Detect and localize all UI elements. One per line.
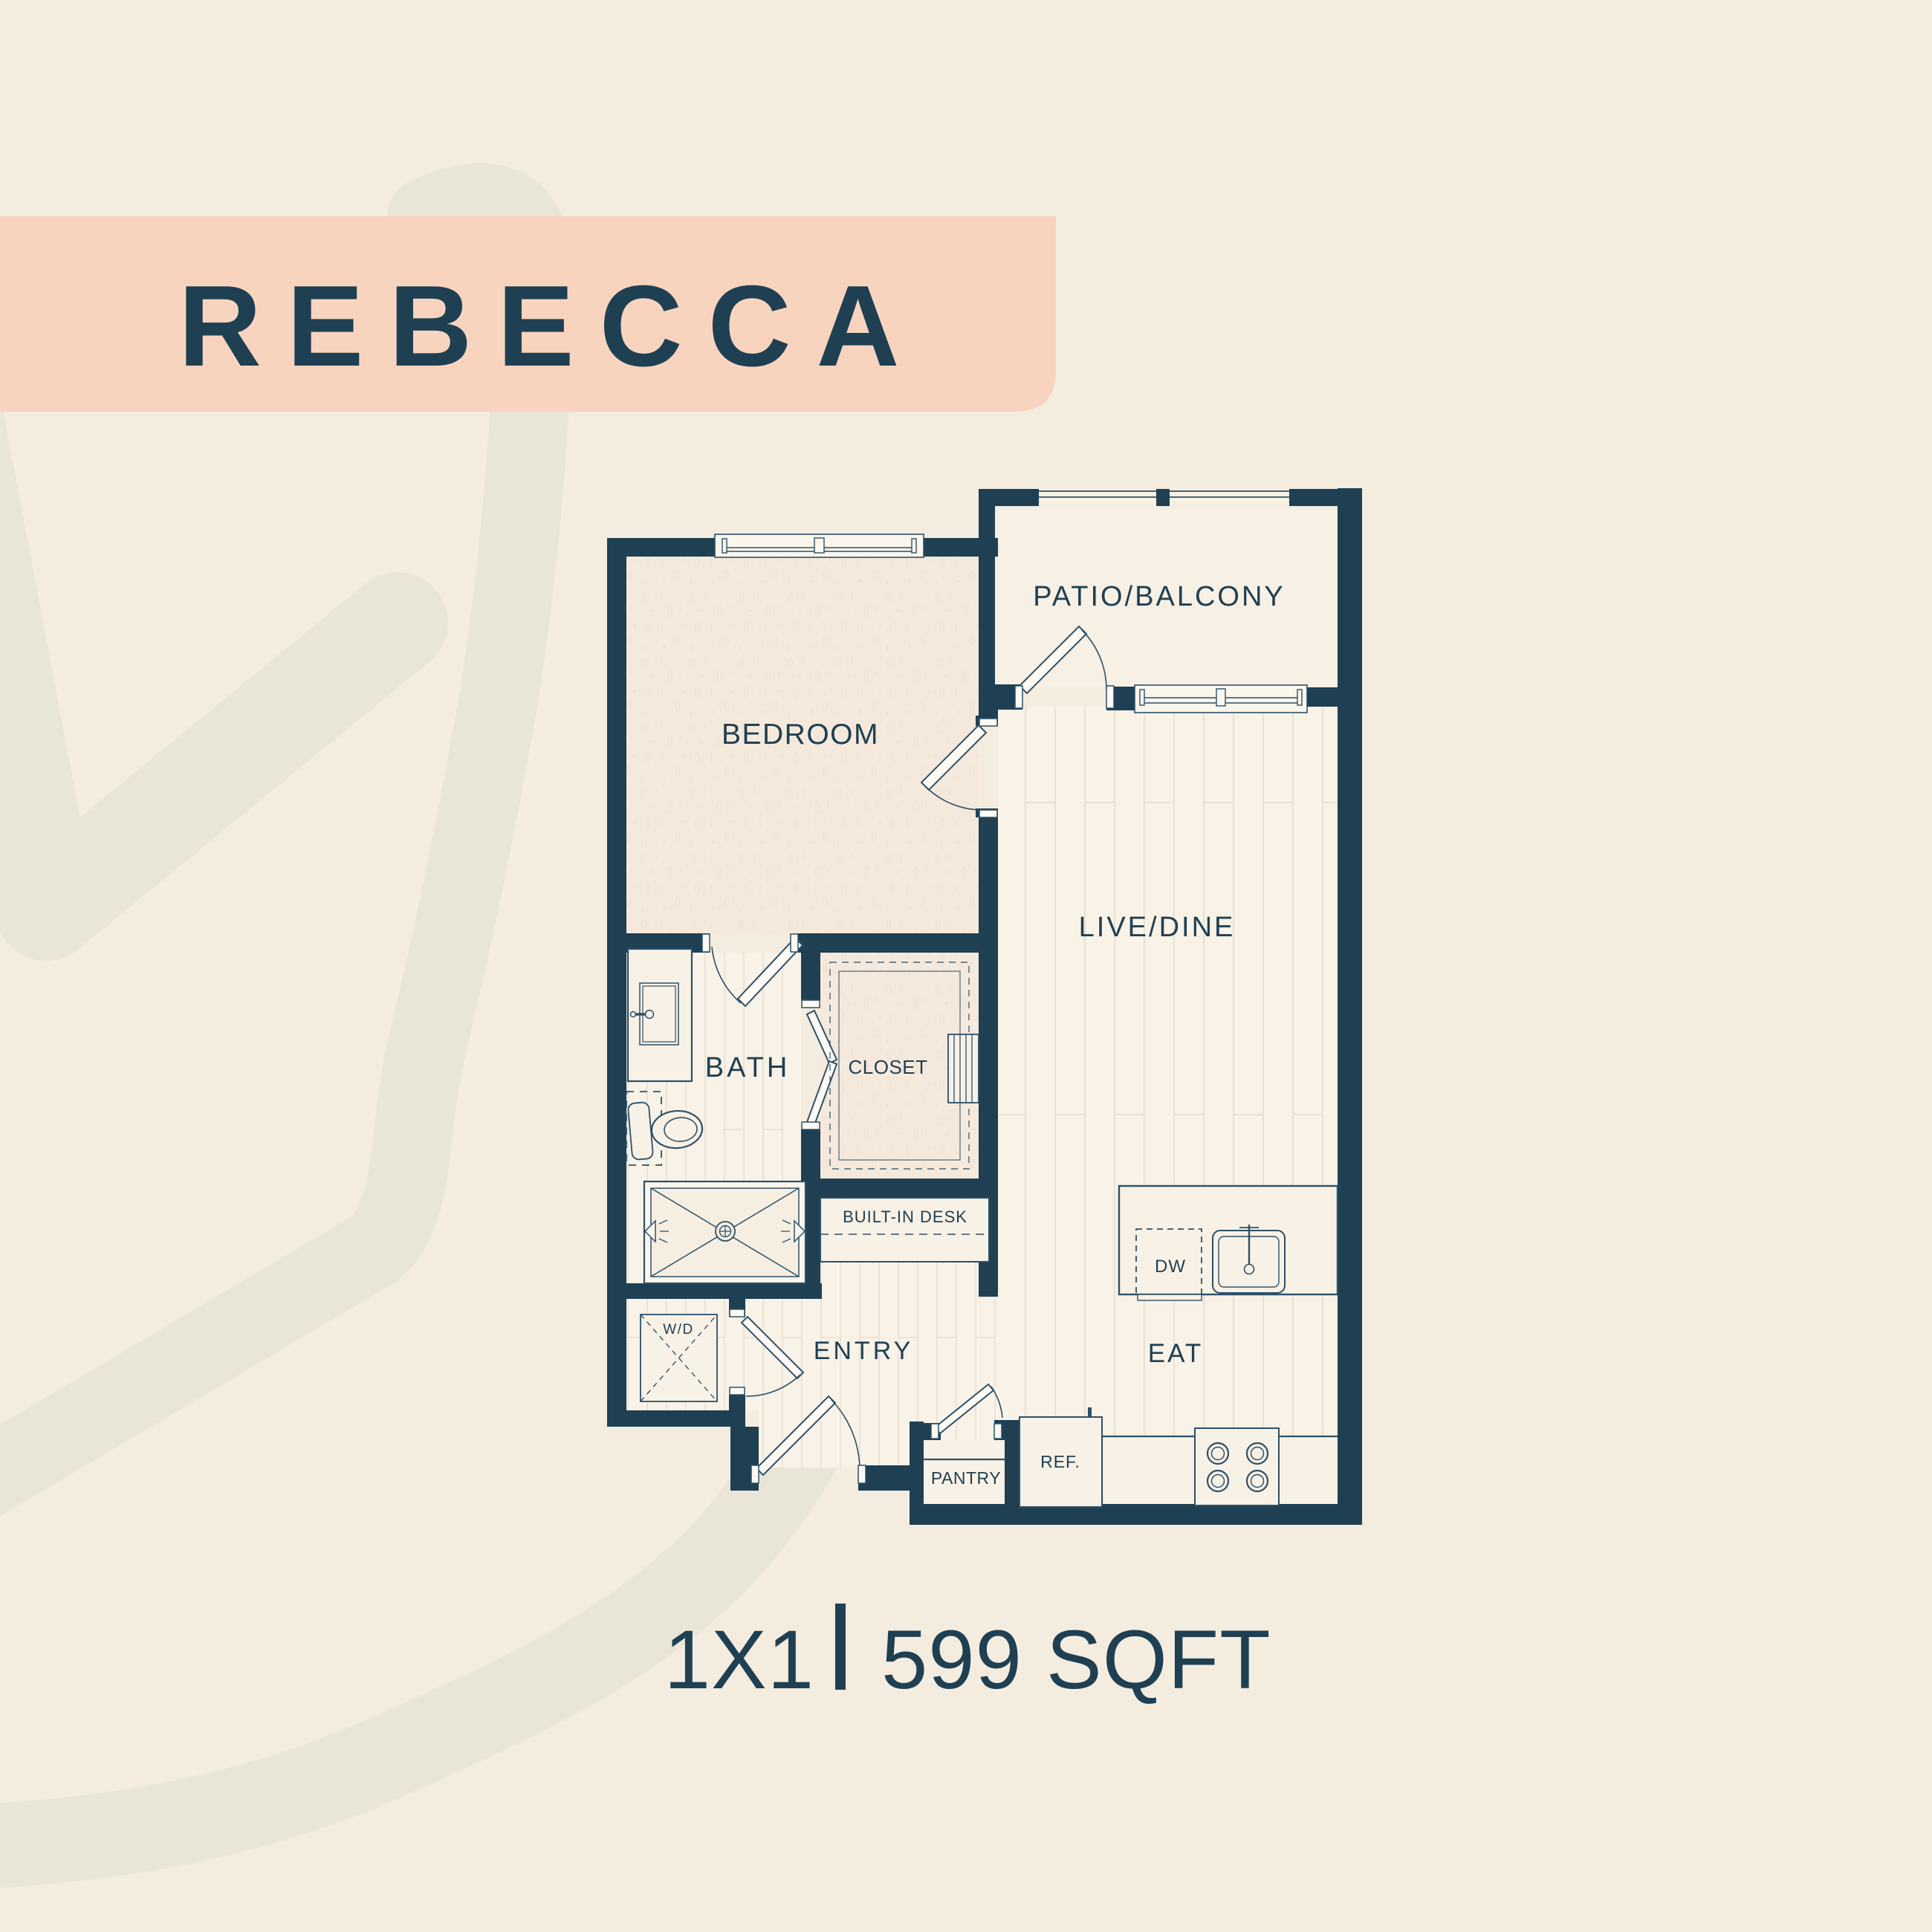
- svg-text:DW: DW: [1155, 1257, 1186, 1277]
- svg-text:BEDROOM: BEDROOM: [722, 719, 879, 751]
- svg-text:599 SQFT: 599 SQFT: [881, 1613, 1271, 1706]
- svg-text:PANTRY: PANTRY: [931, 1468, 1001, 1488]
- svg-text:REF.: REF.: [1040, 1452, 1080, 1471]
- svg-text:LIVE/DINE: LIVE/DINE: [1079, 912, 1236, 943]
- svg-text:PATIO/BALCONY: PATIO/BALCONY: [1033, 581, 1286, 612]
- svg-text:CLOSET: CLOSET: [848, 1056, 927, 1078]
- svg-text:BATH: BATH: [705, 1052, 791, 1083]
- svg-text:ENTRY: ENTRY: [814, 1337, 914, 1365]
- svg-text:EAT: EAT: [1148, 1339, 1203, 1368]
- svg-text:W/D: W/D: [663, 1322, 693, 1338]
- svg-text:BUILT-IN DESK: BUILT-IN DESK: [843, 1207, 967, 1226]
- svg-text:1X1: 1X1: [664, 1613, 814, 1706]
- svg-text:REBECCA: REBECCA: [178, 262, 924, 390]
